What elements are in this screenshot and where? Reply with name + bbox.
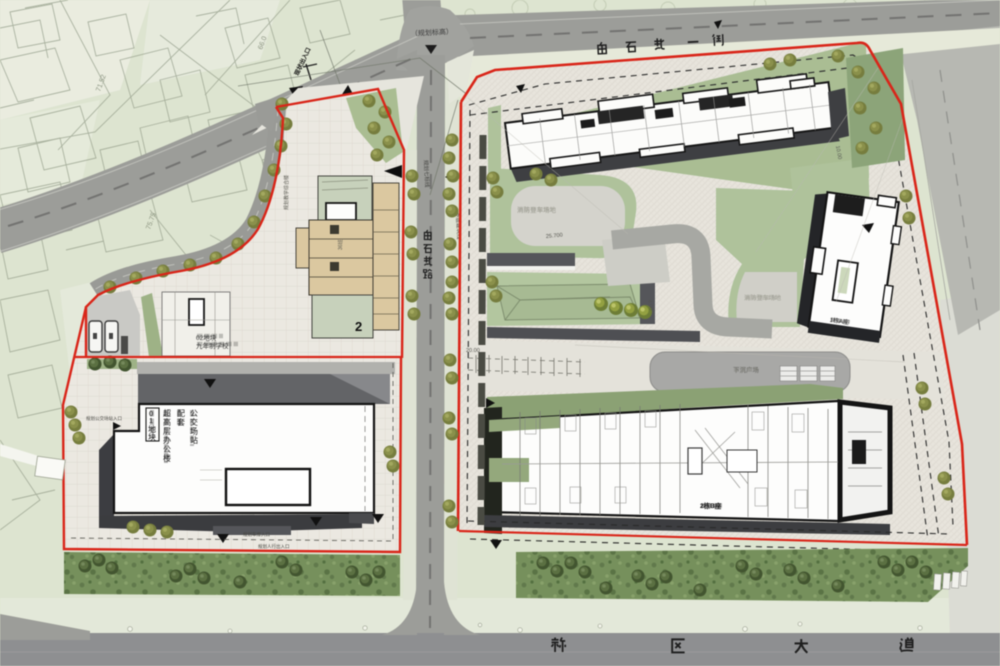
svg-text:公: 公 — [163, 445, 171, 454]
svg-text:层: 层 — [163, 427, 171, 436]
svg-text:超: 超 — [163, 408, 171, 418]
svg-text:站: 站 — [190, 435, 198, 445]
svg-text:02地块: 02地块 — [196, 333, 217, 342]
svg-text:规划人行出入口: 规划人行出入口 — [258, 543, 290, 550]
svg-text:规划教学综合楼: 规划教学综合楼 — [283, 175, 290, 210]
svg-text:办: 办 — [163, 435, 171, 445]
svg-text:规划公交场站入口: 规划公交场站入口 — [86, 415, 122, 422]
svg-text:配: 配 — [177, 409, 185, 418]
svg-text:20.00: 20.00 — [466, 348, 480, 354]
svg-text:规划车库入口: 规划车库入口 — [243, 531, 270, 538]
svg-text:楼: 楼 — [163, 453, 171, 463]
svg-text:块: 块 — [148, 432, 156, 442]
svg-text:36班: 36班 — [337, 239, 344, 250]
svg-text:2: 2 — [355, 319, 362, 334]
svg-text:高: 高 — [163, 417, 171, 427]
svg-text:场: 场 — [190, 427, 198, 436]
svg-text:套: 套 — [177, 417, 185, 427]
svg-text:九年制学校: 九年制学校 — [196, 341, 229, 350]
svg-text:1: 1 — [149, 416, 153, 425]
svg-text:公: 公 — [190, 409, 198, 418]
svg-text:交: 交 — [190, 417, 198, 427]
